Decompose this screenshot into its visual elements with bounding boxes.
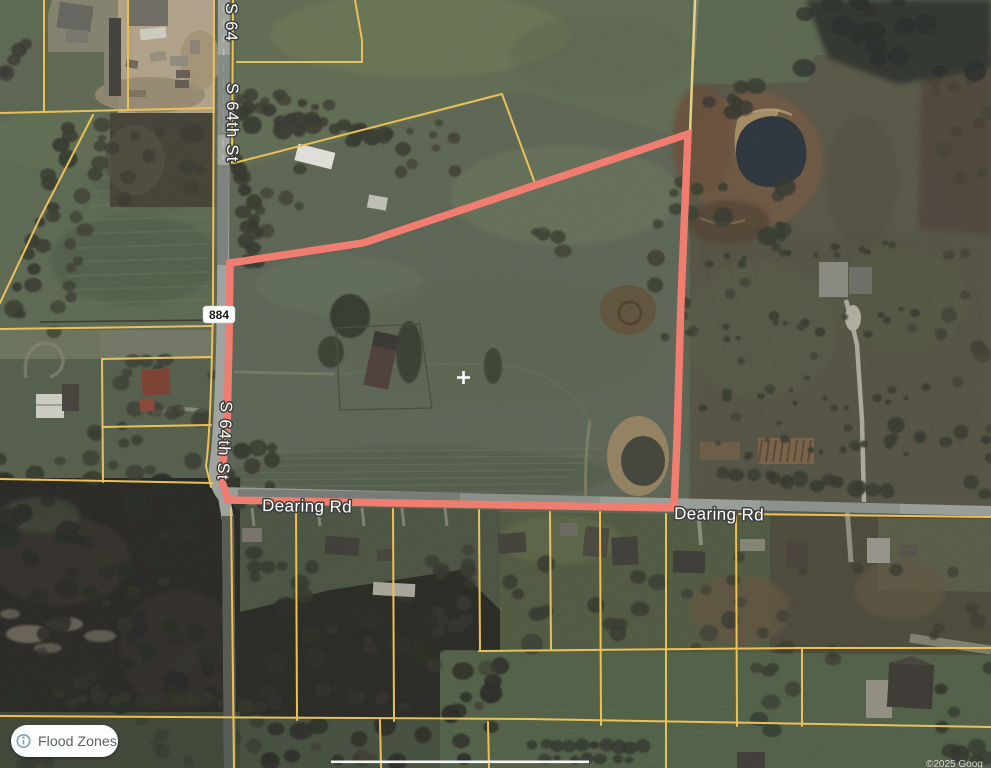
- svg-text:S 64th St: S 64th St: [223, 83, 241, 163]
- svg-text:Flood Zones: Flood Zones: [38, 734, 117, 750]
- svg-text:S 64th St: S 64th St: [214, 401, 235, 481]
- svg-text:Dearing Rd: Dearing Rd: [674, 504, 764, 525]
- svg-text:Dearing Rd: Dearing Rd: [262, 496, 352, 517]
- svg-text:©2025 Goog: ©2025 Goog: [926, 759, 983, 768]
- svg-text:S 64: S 64: [222, 3, 240, 42]
- svg-text:884: 884: [209, 308, 229, 322]
